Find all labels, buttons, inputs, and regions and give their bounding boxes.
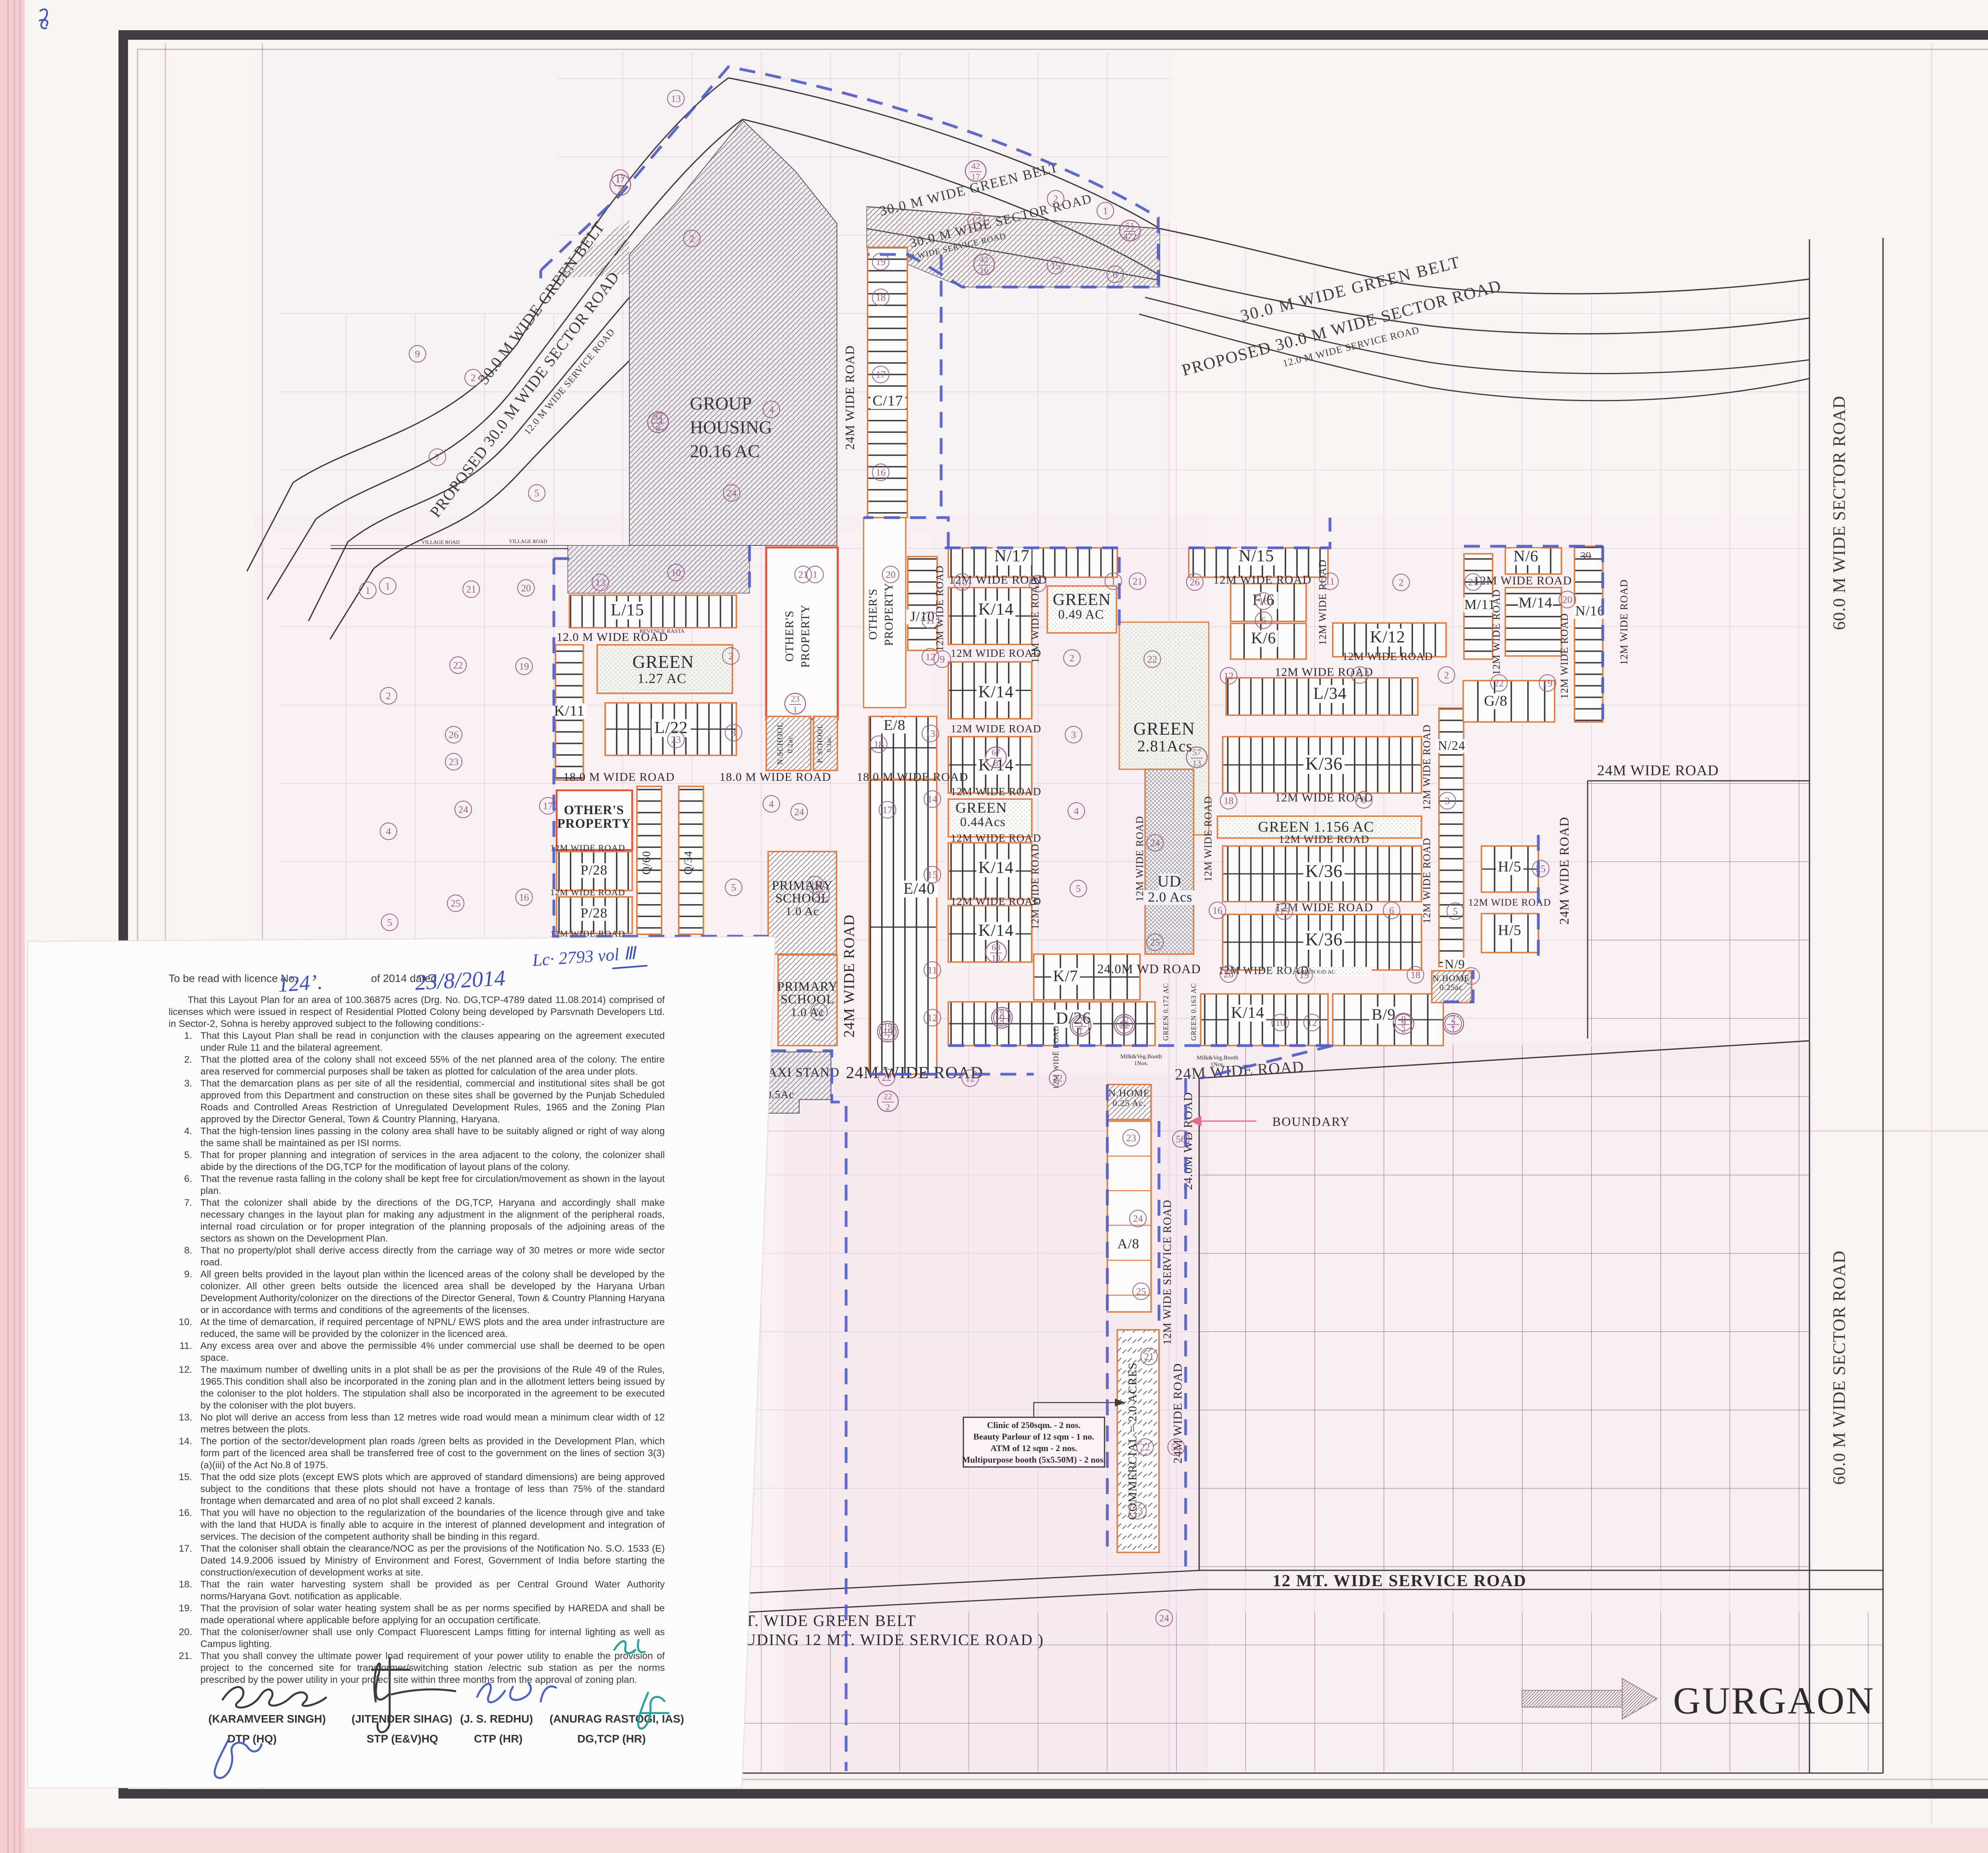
svg-text:Lc· 2793 vol Ⅲ: Lc· 2793 vol Ⅲ	[531, 943, 638, 970]
svg-text:23/8/2014: 23/8/2014	[414, 966, 506, 995]
svg-text:124ʼ.: 124ʼ.	[277, 970, 323, 997]
